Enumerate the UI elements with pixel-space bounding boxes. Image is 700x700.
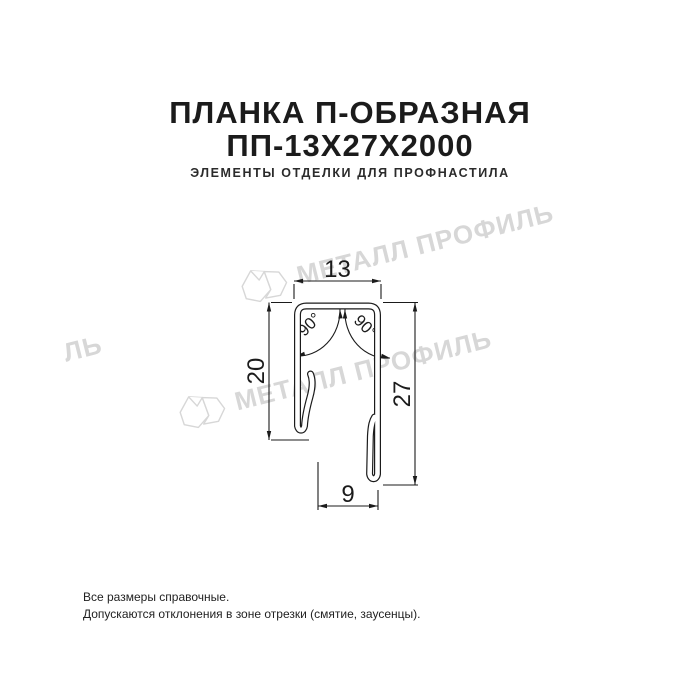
angle-annotation-right: 90° xyxy=(343,310,390,359)
footer-note-line2: Допускаются отклонения в зоне отрезки (с… xyxy=(83,606,420,623)
dimension-top-width: 13 xyxy=(294,256,381,299)
arrowhead-left xyxy=(294,279,303,283)
angle-annotation-left: 90° xyxy=(295,310,343,357)
dimension-right-leg: 27 xyxy=(383,303,418,486)
footer-notes: Все размеры справочные. Допускаются откл… xyxy=(83,589,420,623)
arrowhead-left xyxy=(318,504,327,508)
dimension-label-27: 27 xyxy=(389,381,416,408)
dimension-label-20: 20 xyxy=(243,358,270,385)
footer-note-line1: Все размеры справочные. xyxy=(83,589,420,606)
extension-lines xyxy=(294,284,381,299)
arrowhead-right xyxy=(369,504,378,508)
arrowhead-bottom xyxy=(267,431,271,440)
dimension-label-9: 9 xyxy=(341,481,354,508)
arrowhead-bottom xyxy=(413,476,417,485)
arrowhead-top xyxy=(343,310,347,319)
arrowhead-side xyxy=(381,354,390,358)
arrowhead-top xyxy=(267,303,271,312)
arrowhead-top xyxy=(413,303,417,312)
product-sheet: МЕТАЛЛ ПРОФИЛЬ МЕТАЛЛ ПРОФИЛЬ ЛЬ ПЛАНКА … xyxy=(0,0,700,700)
dimension-label-13: 13 xyxy=(324,256,351,283)
arrowhead-right xyxy=(372,279,381,283)
